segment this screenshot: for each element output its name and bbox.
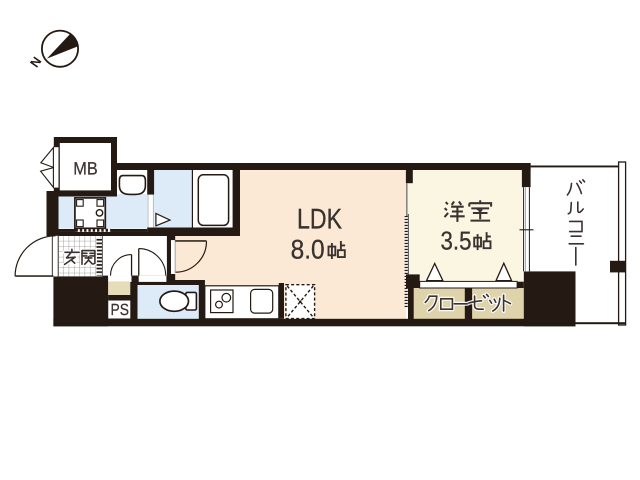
svg-text:8.0: 8.0: [291, 234, 325, 264]
svg-text:MB: MB: [73, 159, 98, 179]
svg-text:LDK: LDK: [297, 204, 342, 236]
svg-text:PS: PS: [111, 301, 130, 319]
svg-text:3.5: 3.5: [441, 225, 472, 255]
